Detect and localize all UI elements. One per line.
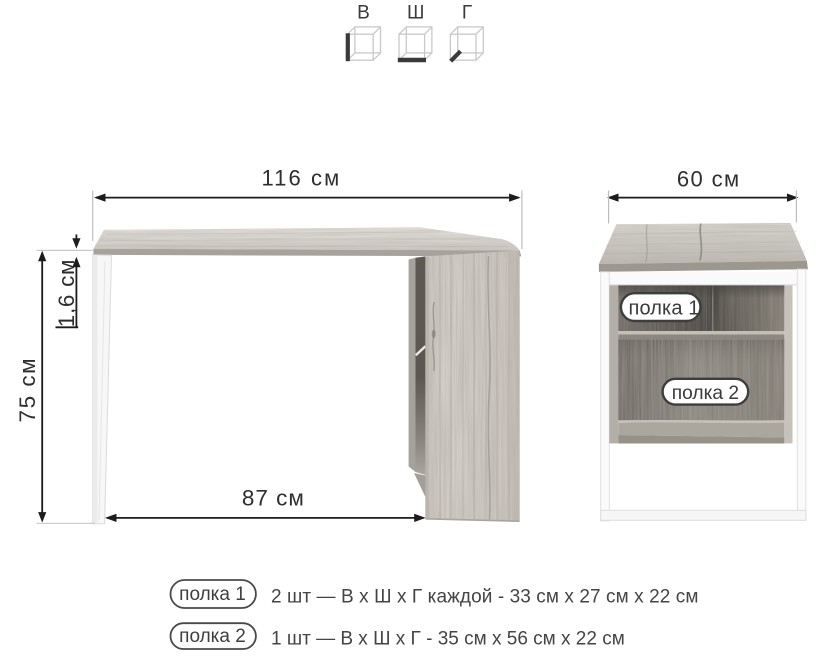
svg-text:Г: Г — [462, 3, 472, 24]
svg-text:В: В — [357, 3, 370, 24]
svg-text:1 шт — В х Ш х Г - 35 см х 56: 1 шт — В х Ш х Г - 35 см х 56 см х 22 см — [271, 628, 625, 649]
svg-text:2 шт — В х Ш х Г каждой - 33 с: 2 шт — В х Ш х Г каждой - 33 см х 27 см … — [271, 587, 699, 608]
svg-text:полка 1: полка 1 — [629, 297, 700, 319]
svg-text:75 см: 75 см — [15, 357, 40, 423]
svg-text:87 см: 87 см — [242, 485, 305, 510]
svg-text:1,6 см: 1,6 см — [54, 259, 79, 327]
svg-text:полка 2: полка 2 — [672, 383, 739, 404]
svg-text:116 см: 116 см — [261, 165, 341, 190]
svg-text:60 см: 60 см — [677, 166, 741, 191]
svg-text:полка 2: полка 2 — [179, 626, 246, 647]
svg-text:полка 1: полка 1 — [179, 584, 246, 605]
svg-text:Ш: Ш — [407, 3, 424, 24]
